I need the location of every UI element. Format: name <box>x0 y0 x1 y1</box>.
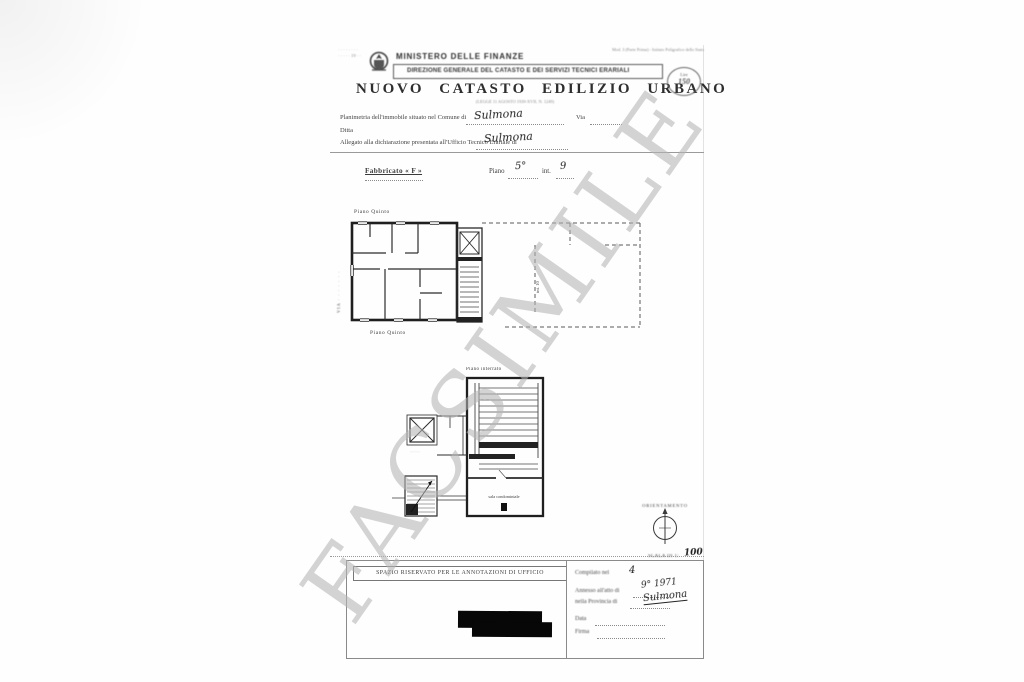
mod-note: Mod. 3 (Parte Prima) - Istituto Poligraf… <box>612 47 704 52</box>
ministry-title: MINISTERO DELLE FINANZE <box>396 52 524 61</box>
upper-plan-stair-core <box>457 228 482 322</box>
footer-divider <box>566 561 567 658</box>
corner-stamp-line2: · · · · · 19 · · <box>338 53 361 59</box>
upper-floor-plan: Piano Quinto <box>330 205 650 345</box>
fabbricato-dotted-line <box>365 179 423 181</box>
footer-box-title-cell: SPAZIO RISERVATO PER LE ANNOTAZIONI DI U… <box>353 566 567 581</box>
upper-plan-label-top: Piano Quinto <box>354 209 390 215</box>
comune-label: Planimetria dell'immobile situato nel Co… <box>340 114 466 121</box>
lower-plan-room-mark <box>501 503 507 511</box>
page-subtitle: (LEGGE 11 AGOSTO 1939-XVII, N. 1249) <box>395 99 635 104</box>
redaction-block-2 <box>472 622 552 638</box>
lower-plan-room-label: sala condominiale <box>488 494 519 499</box>
orientation-title: ORIENTAMENTO <box>642 503 688 508</box>
footer-top-dotted-rule <box>330 556 704 557</box>
upper-plan-street-label: VIA · · · · · · · <box>336 271 341 313</box>
interno-label: int. <box>542 168 551 175</box>
piano-label: Piano <box>489 168 504 175</box>
compilato-label: Compilato nel <box>575 570 609 576</box>
footer-annotations-box: SPAZIO RISERVATO PER LE ANNOTAZIONI DI U… <box>346 560 704 659</box>
upper-plan-outer-walls <box>352 223 457 320</box>
ute-dotted-line <box>476 148 568 150</box>
upper-plan-windows <box>351 222 439 322</box>
ministry-emblem-icon <box>367 50 391 75</box>
compass-icon <box>654 508 677 544</box>
firma-dotted-line <box>597 637 665 639</box>
firma-label: Firma <box>575 629 589 635</box>
lower-plan-corridor <box>437 416 467 455</box>
data-label: Data <box>575 616 586 622</box>
piano-dotted-line <box>508 177 538 179</box>
lower-plan-connector <box>392 496 467 500</box>
direction-title-box: DIREZIONE GENERALE DEL CATASTO E DEI SER… <box>393 64 663 79</box>
upper-plan-adjacent-dashed-outline <box>482 223 640 327</box>
lower-plan-stair-hall <box>469 383 538 469</box>
lower-floor-plan: Piano interrato sala condominiale · · · … <box>390 358 575 528</box>
footer-box-title: SPAZIO RISERVATO PER LE ANNOTAZIONI DI U… <box>376 570 544 576</box>
annesso-value: 9° 1971 <box>641 577 678 591</box>
piano-value: 5° <box>515 161 527 173</box>
via-dotted-line <box>590 123 622 125</box>
ute-value: Sulmona <box>484 130 533 146</box>
comune-value: Sulmona <box>474 107 523 123</box>
lower-plan-elevator <box>407 415 437 445</box>
lire-stamp-value: 150 <box>668 77 700 86</box>
data-dotted-line <box>595 624 665 626</box>
provincia-label: nella Provincia di <box>575 599 617 605</box>
cadastral-document-scan: { "watermark_text": "FACSIMILE", "header… <box>0 0 1024 682</box>
lower-plan-stairs <box>405 476 437 516</box>
provincia-value: Sulmona <box>642 589 687 606</box>
lire-stamp: Lire 150 <box>667 67 701 96</box>
ditta-label: Ditta <box>340 127 353 134</box>
lower-plan-stair-note: · · · · · <box>410 450 420 454</box>
lower-plan-door-swing <box>499 470 506 478</box>
compilato-value: 4 <box>629 565 636 576</box>
corner-stamp: · · · · · · · · · · · · · 19 · · <box>338 47 361 59</box>
interno-value: 9 <box>560 161 567 172</box>
comune-dotted-line <box>466 123 564 125</box>
upper-plan-adjacent-note: int. 10 <box>535 281 540 293</box>
upper-plan-label-bottom: Piano Quinto <box>370 330 406 336</box>
provincia-dotted-line <box>630 607 670 609</box>
via-label: Via <box>576 114 585 121</box>
interno-dotted-line <box>556 177 574 179</box>
header-divider-rule <box>330 152 704 153</box>
lower-plan-label-top: Piano interrato <box>466 367 502 372</box>
fabbricato-label: Fabbricato « F » <box>365 167 422 175</box>
upper-plan-internal-walls <box>352 223 457 320</box>
direction-title: DIREZIONE GENERALE DEL CATASTO E DEI SER… <box>407 65 629 77</box>
annesso-label: Annesso all'atto di <box>575 588 619 594</box>
